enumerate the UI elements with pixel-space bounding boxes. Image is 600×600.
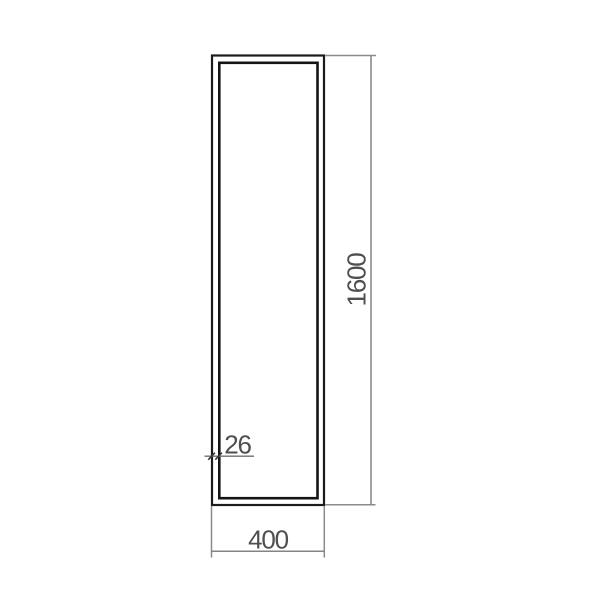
svg-text:1600: 1600 <box>342 253 372 307</box>
svg-text:400: 400 <box>248 525 289 555</box>
svg-text:26: 26 <box>224 430 251 460</box>
